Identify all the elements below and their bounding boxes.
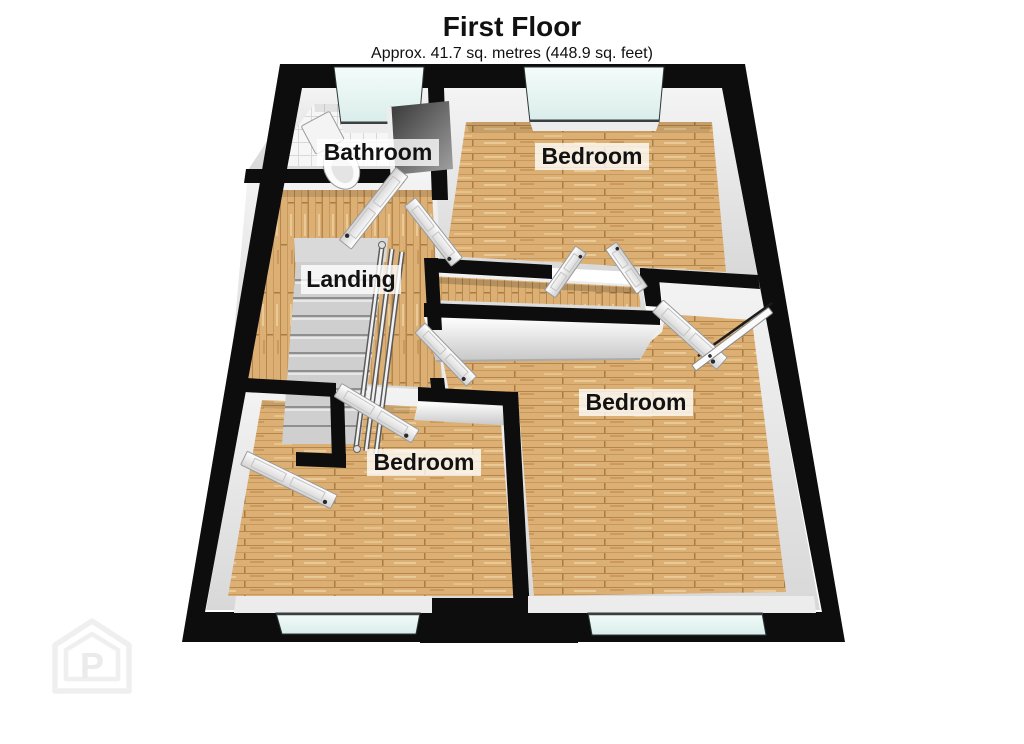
newel-post [379,242,386,249]
cupboard-return-wall [296,452,346,468]
shadow [262,190,432,197]
label-bedroom-top: Bedroom [535,143,649,170]
room-label: Bathroom [324,139,433,165]
page-subtitle: Approx. 41.7 sq. metres (448.9 sq. feet) [371,45,653,62]
label-bedroom-right: Bedroom [579,389,693,416]
window-sill [530,122,659,131]
floor-plan-page: P First Floor Approx. 41.7 sq. metres (4… [0,0,1024,744]
label-bedroom-left: Bedroom [367,449,481,476]
window-sill [234,596,432,613]
room-label: Bedroom [586,389,687,415]
window-bedroom-top [524,67,664,131]
watermark-letter: P [80,645,104,686]
page-title: First Floor [443,11,582,42]
room-label: Landing [306,266,395,292]
room-label: Bedroom [542,143,643,169]
window-glass [588,613,766,635]
newel-post [354,446,361,453]
watermark-logo: P [55,621,129,691]
floor-plan: Bathroom Bedroom Landing Bedroom Bedroom [182,64,845,643]
label-bathroom: Bathroom [317,139,439,166]
room-label: Bedroom [374,449,475,475]
bathroom-south-wall [244,169,336,183]
header: First Floor Approx. 41.7 sq. metres (448… [371,11,653,62]
label-landing: Landing [301,265,401,294]
floor-plan-image: P First Floor Approx. 41.7 sq. metres (4… [0,0,1024,744]
window-sill [528,596,816,613]
window-glass [524,67,664,122]
window-glass [276,613,420,634]
